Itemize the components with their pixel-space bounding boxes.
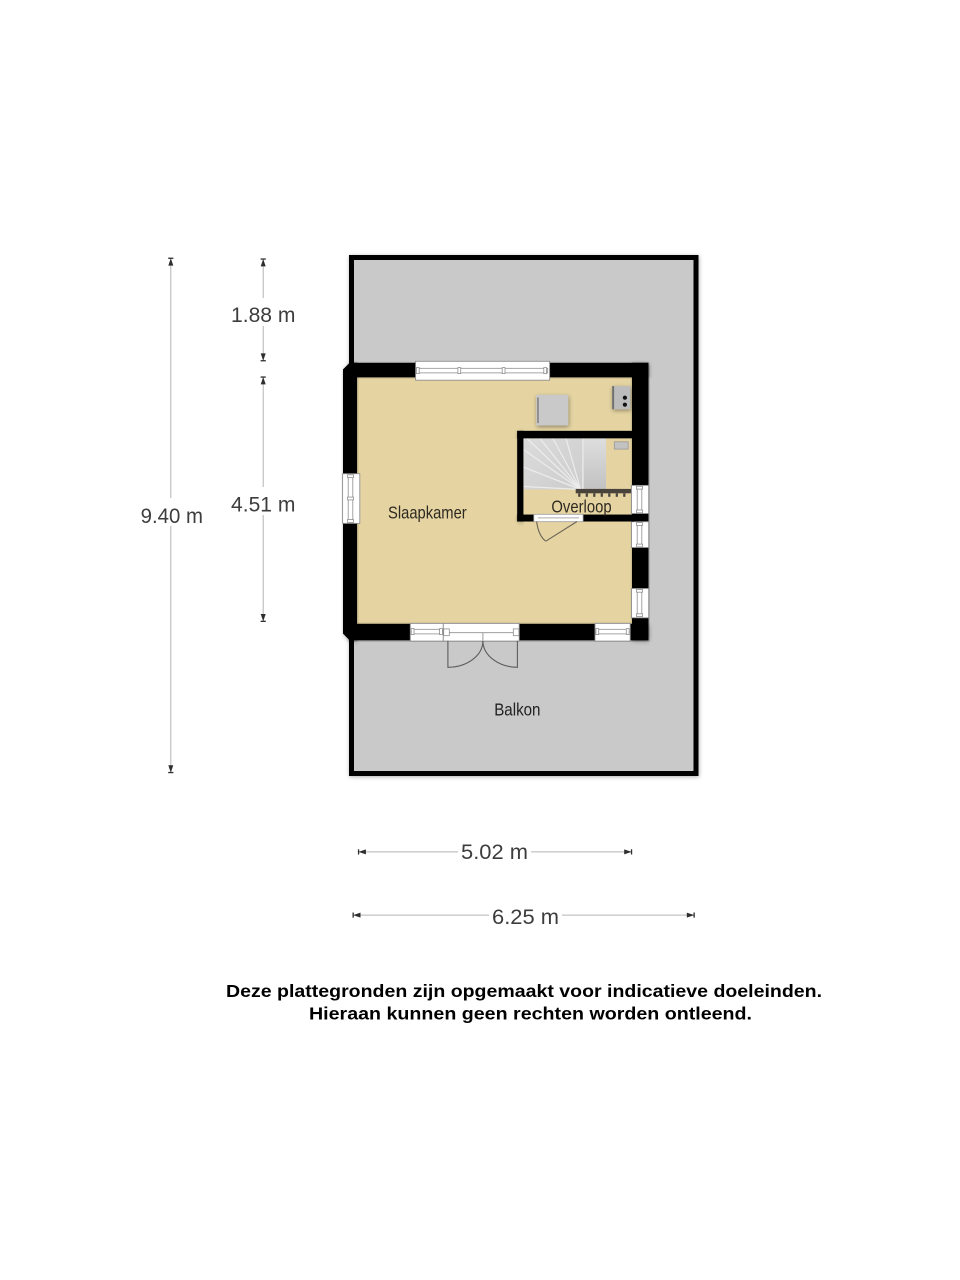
svg-text:Deze plattegronden zijn opgema: Deze plattegronden zijn opgemaakt voor i… <box>226 981 822 1001</box>
svg-text:4.51 m: 4.51 m <box>231 494 295 517</box>
svg-text:Balkon: Balkon <box>494 699 540 719</box>
svg-text:Slaapkamer: Slaapkamer <box>388 502 467 522</box>
svg-text:5.02 m: 5.02 m <box>461 841 528 864</box>
svg-text:6.25 m: 6.25 m <box>492 906 559 929</box>
svg-text:1.88 m: 1.88 m <box>231 304 295 327</box>
svg-text:Overloop: Overloop <box>551 496 611 516</box>
svg-text:9.40 m: 9.40 m <box>141 505 203 528</box>
svg-text:Hieraan kunnen geen rechten wo: Hieraan kunnen geen rechten worden ontle… <box>309 1004 752 1024</box>
